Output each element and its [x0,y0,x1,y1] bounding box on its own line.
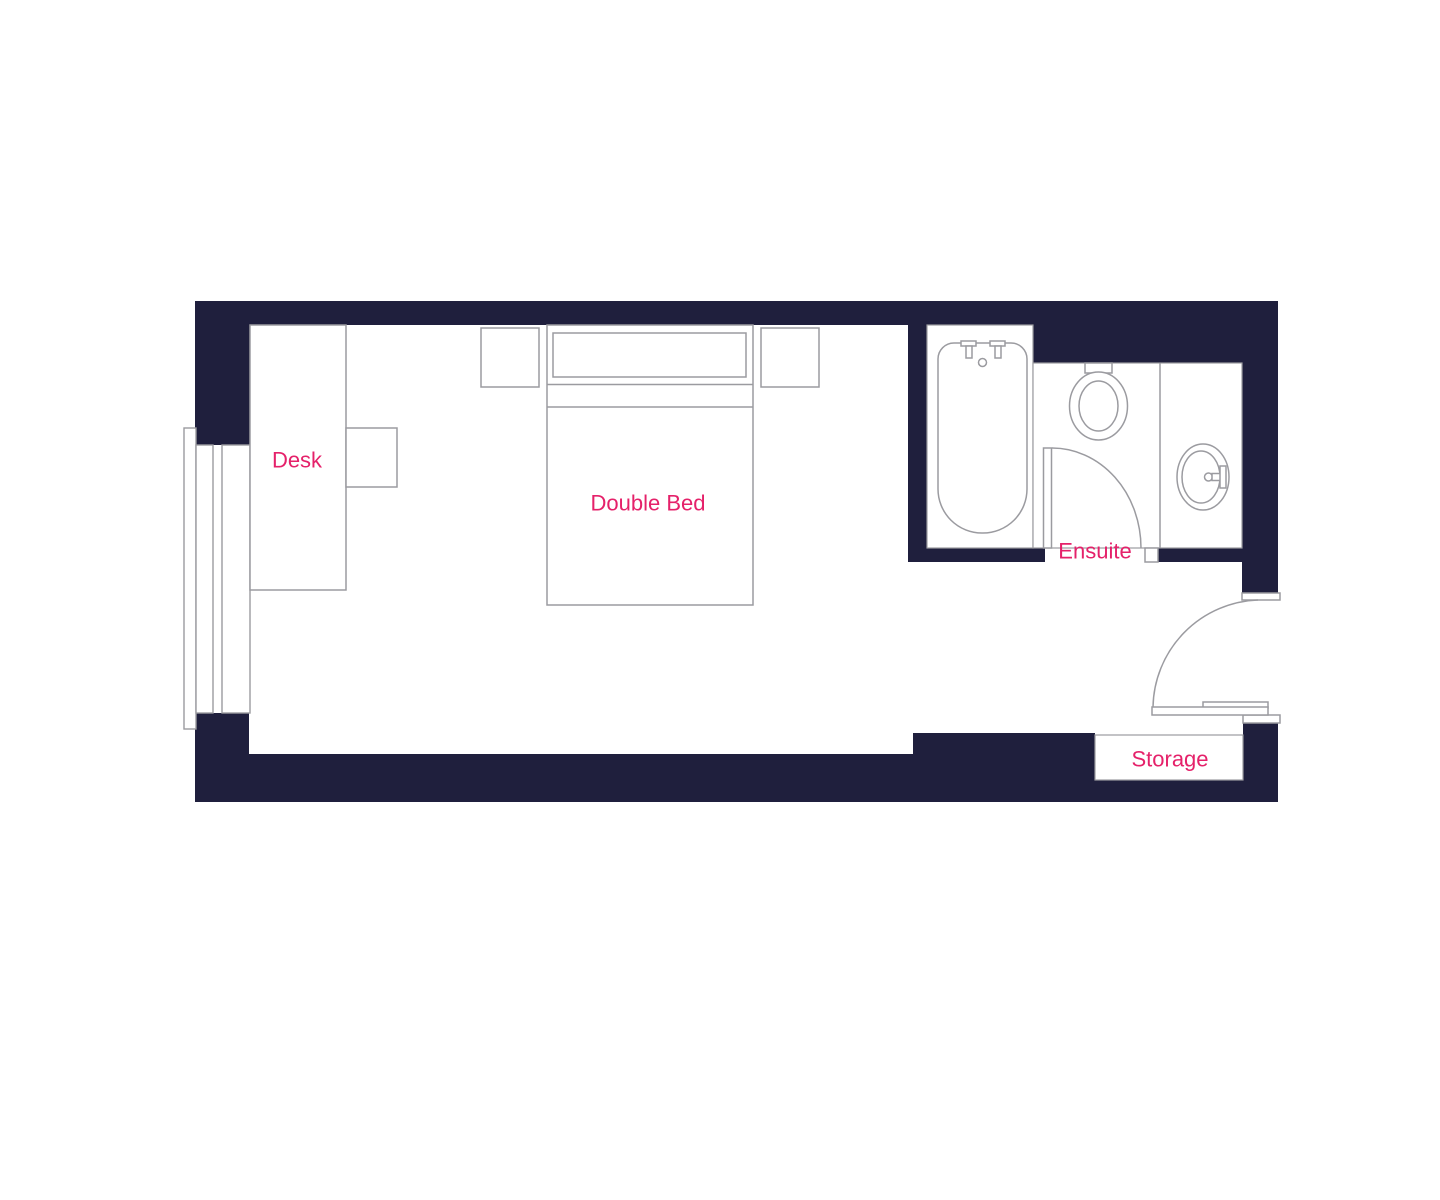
entry-door-jamb-top [1242,593,1280,600]
sink-icon [1177,444,1229,510]
window-pane-inner [222,445,250,713]
ensuite-door-leaf [1044,448,1052,548]
bathtub-icon [938,341,1027,533]
bathtub-outline [938,343,1027,533]
sink-tap-bar [1220,466,1226,488]
nightstand-left [481,328,539,387]
entry-door-jamb-bottom [1243,715,1280,723]
furniture [250,325,819,605]
wall-bottom-step [913,733,1095,802]
bath-drain-icon [979,359,987,367]
bath-tap-right-stem [995,346,1001,358]
wall-ensuite-divider [908,325,927,562]
bath-tap-left-stem [966,346,972,358]
storage-label: Storage [1131,747,1208,772]
floorplan-canvas: Desk Double Bed Ensuite Storage [0,0,1440,1200]
wall-corner-bottom-right [1243,723,1278,802]
wall-below-storage [1095,780,1243,802]
double-bed-label: Double Bed [591,491,706,516]
wall-left-upper [195,301,250,445]
ensuite-label: Ensuite [1058,539,1131,564]
desk-chair [346,428,397,487]
toilet-bowl-inner [1079,381,1118,431]
window [184,428,250,729]
floorplan-page: Desk Double Bed Ensuite Storage [0,0,1440,1200]
wall-bottom-left [195,754,913,802]
wall-top-ensuite [1033,301,1242,363]
wall-right [1242,301,1278,593]
bed-pillow [553,333,746,377]
window-sill [184,428,196,729]
ensuite-door-threshold [1145,548,1158,562]
desk-label: Desk [272,448,323,473]
wall-ensuite-bottom-right [1158,548,1242,562]
window-pane-outer [196,445,213,713]
wall-ensuite-bottom-left [908,548,1045,562]
wall-left-lower [195,713,249,758]
entry-door-swing-arc [1153,600,1258,707]
nightstand-right [761,328,819,387]
entry-door-leaf [1152,707,1268,715]
